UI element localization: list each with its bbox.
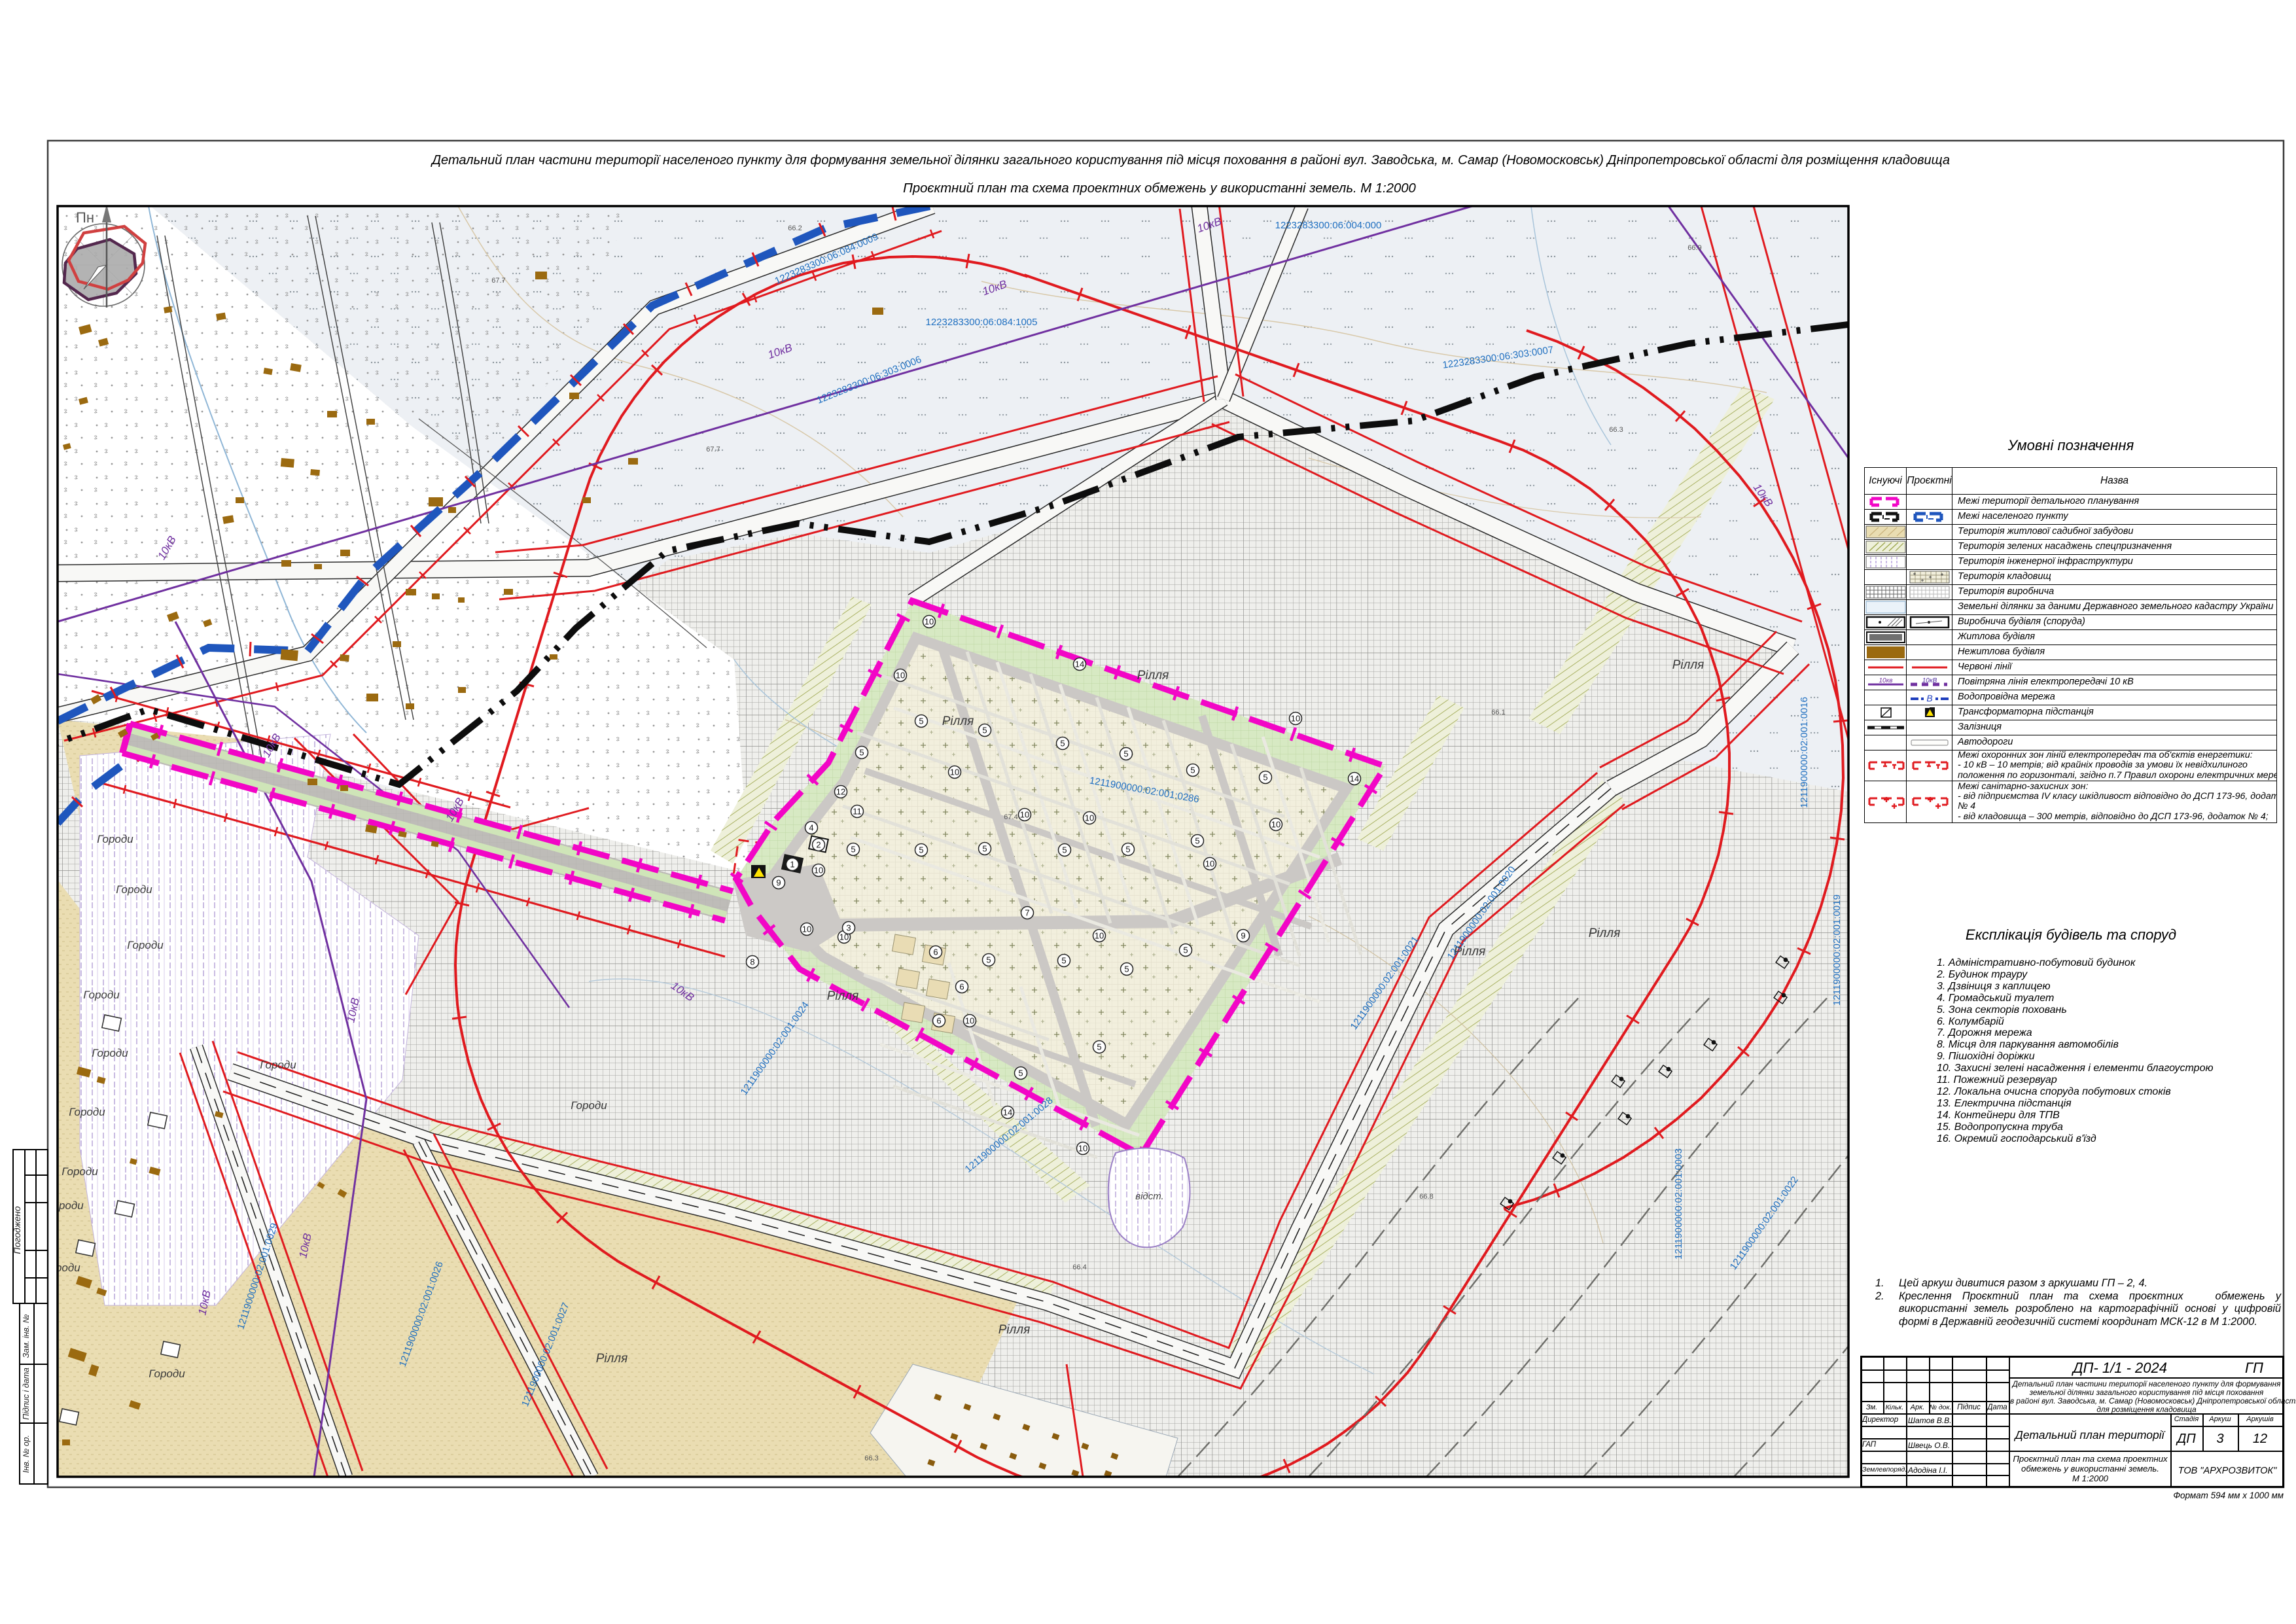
svg-text:67.4: 67.4 [1004, 813, 1017, 821]
svg-text:відст.: відст. [1135, 1191, 1163, 1202]
svg-text:5: 5 [1183, 945, 1188, 955]
svg-text:9: 9 [776, 878, 781, 888]
svg-text:5: 5 [859, 748, 864, 758]
svg-text:Городи: Городи [97, 833, 133, 845]
svg-text:14: 14 [1075, 660, 1084, 669]
svg-text:10: 10 [1078, 1144, 1087, 1154]
svg-text:10: 10 [965, 1016, 974, 1026]
svg-text:6: 6 [959, 982, 964, 992]
svg-text:1211900000:02:001:0016: 1211900000:02:001:0016 [1799, 697, 1810, 808]
svg-text:5: 5 [919, 716, 923, 726]
svg-text:66.9: 66.9 [1687, 244, 1701, 252]
svg-text:66.1: 66.1 [1491, 709, 1505, 716]
svg-text:66.4: 66.4 [1072, 1263, 1086, 1271]
svg-text:10кВ: 10кВ [1922, 677, 1937, 684]
svg-text:6: 6 [933, 947, 938, 957]
svg-text:10: 10 [925, 617, 934, 627]
svg-text:66.3: 66.3 [864, 1455, 878, 1462]
svg-text:Городи: Городи [69, 1106, 105, 1118]
svg-text:Городи: Городи [62, 1165, 98, 1178]
svg-text:9: 9 [1241, 931, 1245, 941]
svg-text:1: 1 [790, 860, 794, 870]
svg-text:5: 5 [1263, 773, 1267, 783]
svg-text:5: 5 [1195, 836, 1199, 846]
svg-text:5: 5 [986, 955, 991, 965]
svg-text:14: 14 [1003, 1108, 1012, 1118]
svg-text:2: 2 [816, 840, 821, 850]
svg-text:10: 10 [802, 925, 811, 934]
svg-text:5: 5 [1190, 766, 1195, 775]
svg-text:67.7: 67.7 [706, 446, 720, 453]
svg-text:Пн: Пн [76, 209, 94, 226]
svg-text:10: 10 [1095, 931, 1104, 941]
svg-text:8: 8 [750, 957, 754, 967]
svg-text:5: 5 [1061, 956, 1066, 966]
svg-text:5: 5 [1060, 739, 1065, 749]
svg-text:Городи: Городи [116, 883, 152, 896]
svg-text:5: 5 [1018, 1068, 1023, 1078]
svg-text:66.3: 66.3 [1609, 426, 1623, 434]
svg-text:5: 5 [1124, 964, 1129, 974]
svg-text:7: 7 [1025, 908, 1029, 918]
svg-text:Городи: Городи [127, 939, 164, 951]
svg-text:1211900000:02:001:0019: 1211900000:02:001:0019 [1831, 894, 1843, 1006]
svg-text:66.2: 66.2 [788, 224, 802, 232]
svg-text:Городи: Городи [149, 1368, 185, 1380]
svg-text:10: 10 [1085, 813, 1094, 823]
svg-text:Городи: Городи [83, 989, 120, 1001]
svg-text:5: 5 [1125, 845, 1130, 855]
svg-text:5: 5 [919, 845, 923, 855]
svg-text:10: 10 [1271, 820, 1280, 830]
svg-text:5: 5 [982, 844, 987, 854]
svg-text:Городи: Городи [44, 1262, 80, 1274]
svg-text:5: 5 [1097, 1042, 1101, 1052]
svg-text:5: 5 [1062, 845, 1067, 855]
svg-text:1223283300:06:004:000: 1223283300:06:004:000 [1275, 220, 1382, 231]
svg-text:66.8: 66.8 [1419, 1193, 1433, 1201]
svg-text:Рілля: Рілля [998, 1323, 1030, 1337]
svg-text:Рілля: Рілля [942, 715, 974, 728]
svg-text:Городи: Городи [47, 1199, 84, 1212]
svg-text:3: 3 [846, 923, 851, 933]
svg-text:10кв: 10кв [1879, 677, 1892, 684]
svg-text:Погоджено: Погоджено [12, 1206, 22, 1254]
svg-text:4: 4 [809, 823, 813, 833]
svg-text:Рілля: Рілля [596, 1352, 627, 1366]
svg-text:1223283300:06:084:1005: 1223283300:06:084:1005 [925, 317, 1037, 328]
svg-text:5: 5 [1123, 749, 1128, 759]
svg-text:5: 5 [851, 845, 855, 855]
svg-text:10: 10 [950, 768, 959, 777]
svg-text:Рілля: Рілля [1137, 669, 1169, 682]
svg-text:11: 11 [853, 807, 862, 817]
svg-text:Інв. № ор.: Інв. № ор. [22, 1435, 31, 1473]
svg-text:1211900000:02:001:0003: 1211900000:02:001:0003 [1673, 1148, 1684, 1260]
svg-text:Рілля: Рілля [827, 989, 858, 1003]
svg-text:12: 12 [836, 787, 845, 797]
svg-text:Городи: Городи [571, 1099, 607, 1112]
svg-text:Підпис і дата: Підпис і дата [22, 1368, 31, 1420]
svg-text:10: 10 [1205, 859, 1214, 869]
svg-text:67.7: 67.7 [491, 277, 505, 285]
svg-text:10: 10 [814, 866, 823, 875]
svg-text:6: 6 [936, 1016, 941, 1026]
svg-text:В: В [1926, 693, 1932, 703]
svg-text:Городи: Городи [260, 1059, 296, 1071]
svg-text:14: 14 [1350, 774, 1359, 784]
svg-text:10: 10 [1020, 810, 1029, 820]
svg-text:Рілля: Рілля [1589, 927, 1620, 940]
svg-text:10: 10 [1291, 714, 1300, 724]
svg-text:Зам. інв. №: Зам. інв. № [22, 1314, 31, 1358]
svg-text:5: 5 [982, 726, 987, 735]
svg-text:Городи: Городи [92, 1047, 128, 1059]
svg-text:Рілля: Рілля [1672, 658, 1704, 672]
svg-text:10: 10 [896, 671, 905, 680]
